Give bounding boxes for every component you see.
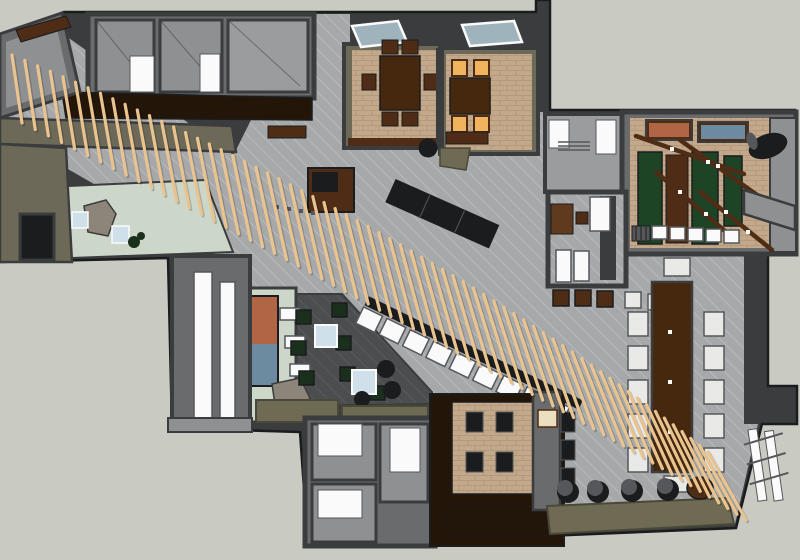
olive-wall-wedge	[440, 148, 470, 170]
cushion-seat	[112, 226, 129, 243]
skylight-a	[352, 21, 407, 47]
pantry-room	[545, 114, 623, 192]
treatment-rooms	[305, 418, 435, 546]
top-utility-rooms	[88, 14, 314, 98]
barrel-stool-top	[621, 479, 637, 495]
l-counter-top	[312, 172, 338, 192]
office-lounge	[548, 192, 626, 286]
lounge-table	[352, 370, 376, 394]
barrel-stool-top	[587, 480, 603, 496]
dining-b-bench	[446, 132, 488, 144]
cream-cabinet	[538, 410, 557, 427]
round-side-table	[419, 139, 438, 158]
mural-lower	[250, 344, 278, 386]
cushion-seat	[72, 212, 88, 228]
skylight-b	[462, 21, 522, 46]
potted-plant-leaf	[137, 232, 145, 240]
pouf	[354, 391, 370, 407]
dining-b-table	[450, 78, 490, 114]
wood-ledge	[268, 126, 306, 138]
window-strip	[220, 282, 235, 426]
wood-top-stools	[553, 290, 613, 307]
wall-side-chairs	[561, 412, 575, 488]
games-room	[622, 112, 796, 254]
mural-upper	[250, 296, 278, 344]
window-wall	[168, 256, 252, 432]
window-wall-cap	[168, 418, 252, 432]
office-desk	[551, 204, 573, 234]
pouf	[377, 360, 395, 378]
artwork-canvas	[649, 123, 689, 137]
office-chair	[576, 212, 588, 224]
window-strip	[194, 272, 212, 420]
entry-doorway	[20, 214, 54, 260]
floorplan-stage	[0, 0, 800, 560]
dining-a-table	[380, 56, 420, 110]
floorplan-render	[0, 0, 800, 560]
dining-divider-wall	[436, 48, 444, 148]
pouf	[383, 381, 401, 399]
lounge-table	[315, 325, 337, 347]
barrel-stool-top	[657, 478, 673, 494]
artwork-canvas	[701, 125, 745, 139]
barrel-stool-top	[557, 480, 573, 496]
